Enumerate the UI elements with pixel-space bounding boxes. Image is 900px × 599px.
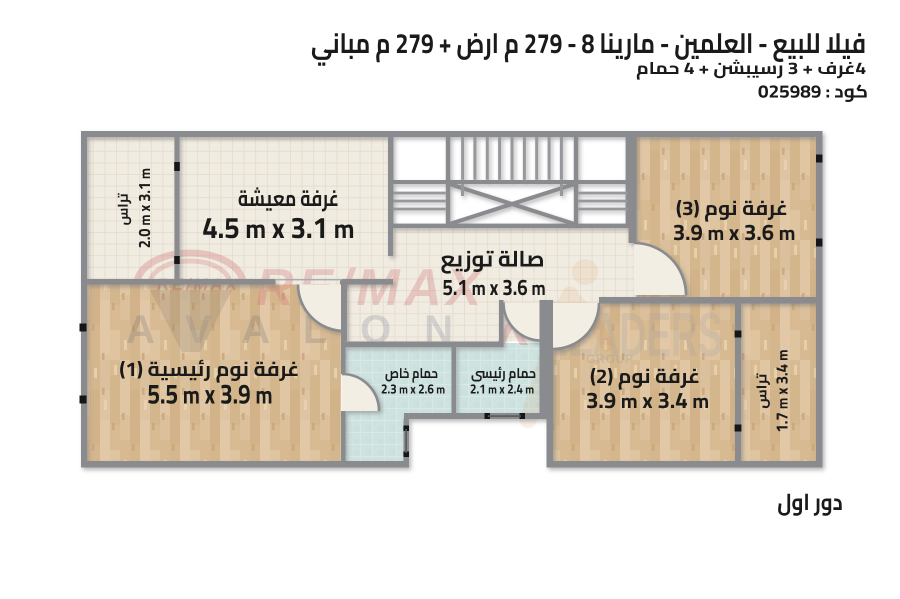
- svg-text:GROUP: GROUP: [586, 352, 637, 366]
